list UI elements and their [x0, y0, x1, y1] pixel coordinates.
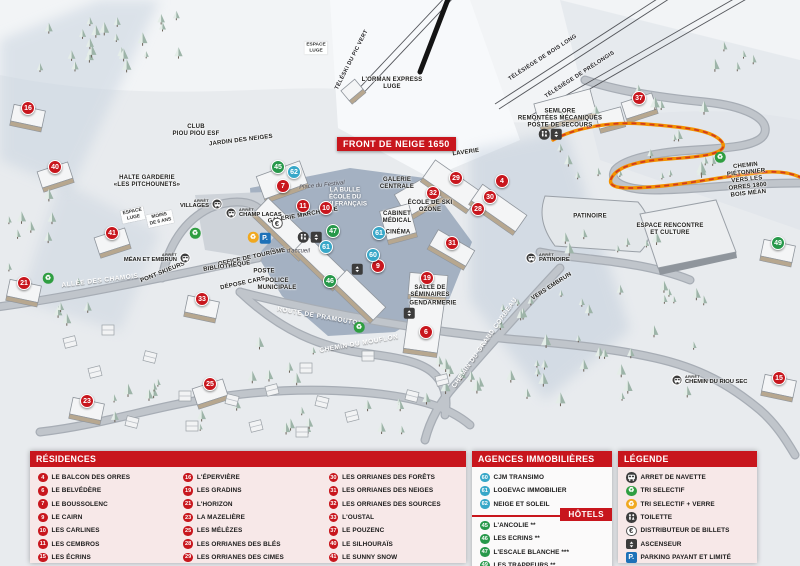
map-marker-16-0[interactable]: 16 [21, 101, 35, 115]
hotel-number-badge: 46 [480, 534, 490, 544]
map-marker-32-14[interactable]: 32 [426, 186, 440, 200]
map-marker-46-23[interactable]: 46 [323, 274, 337, 288]
residence-label: LES ÉCRINS [52, 554, 91, 561]
elevator-icon [352, 264, 363, 275]
residence-label: LE SILHOURAÏS [342, 541, 393, 548]
map-marker-28-16[interactable]: 28 [471, 202, 485, 216]
amenity-euro-0: € [272, 218, 283, 229]
residence-item-33: 33L'OUSTAL [321, 511, 466, 524]
amenity-recycle-5: ♻ [354, 322, 365, 333]
map-marker-60-28[interactable]: 60 [366, 248, 380, 262]
legende-title: LÉGENDE [618, 451, 757, 467]
legend-label: DISTRIBUTEUR DE BILLETS [641, 527, 730, 534]
amenity-elevator-8 [311, 232, 322, 243]
hotel-number-badge: 45 [480, 521, 490, 531]
residence-item-41: 41LE SUNNY SNOW [321, 551, 466, 564]
residence-item-7: 7LE BOUSSOLENC [30, 498, 175, 511]
residence-item-23: 23LA MAZELIÈRE [175, 511, 320, 524]
legend-item-2: ♻TRI SELECTIF + VERRE [618, 498, 757, 511]
parking-icon: P. [626, 552, 637, 563]
hotel-item-49: 49LES TRAPPEURS ** [472, 559, 612, 566]
amenity-toilet-10 [539, 129, 550, 140]
residence-item-28: 28LES ORRIANES DES BLÉS [175, 537, 320, 550]
agence-number-badge: 60 [480, 473, 490, 483]
map-marker-6-11[interactable]: 6 [419, 325, 433, 339]
residence-number-badge: 21 [183, 499, 193, 509]
legend-label: TRI SELECTIF [641, 487, 685, 494]
residence-number-badge: 6 [38, 486, 48, 496]
toilet-icon [298, 232, 309, 243]
residence-number-badge: 32 [329, 499, 339, 509]
hotel-number-badge: 49 [480, 561, 490, 566]
bus-stop-label-1: ARRÊTCHAMP LACAS [239, 208, 282, 218]
agences-title: AGENCES IMMOBILIÈRES [472, 451, 612, 467]
bus-stop-icon-2 [180, 253, 191, 264]
residence-item-29: 29LES ORRIANES DES CIMES [175, 551, 320, 564]
residence-label: LES ORRIANES DES BLÉS [197, 541, 281, 548]
front-de-neige-banner: FRONT DE NEIGE 1650 [337, 137, 456, 151]
map-marker-29-12[interactable]: 29 [449, 171, 463, 185]
bus-stop-label-3: ARRÊTPATINOIRE [539, 253, 570, 263]
residence-item-19: 19LES GRADINS [175, 484, 320, 497]
residence-number-badge: 29 [183, 553, 193, 563]
residence-label: L'HORIZON [197, 501, 233, 508]
map-marker-11-8[interactable]: 11 [296, 199, 310, 213]
residence-number-badge: 10 [38, 526, 48, 536]
residence-number-badge: 37 [329, 526, 339, 536]
hotel-item-47: 47L'ESCALE BLANCHE *** [472, 545, 612, 558]
map-marker-61-26[interactable]: 61 [319, 240, 333, 254]
legend-item-0: ARRET DE NAVETTE [618, 471, 757, 484]
residence-label: LE BELVÉDÈRE [52, 487, 102, 494]
residence-number-badge: 25 [183, 526, 193, 536]
resort-map: FRONT DE NEIGE 1650 L'ORMAN EXPRESS LUGE… [0, 0, 800, 566]
bus-stop-icon-3 [526, 253, 537, 264]
map-marker-41-3[interactable]: 41 [105, 226, 119, 240]
amenity-recycle-glass-2: ♻ [248, 232, 259, 243]
agence-label: NEIGE ET SOLEIL [494, 501, 550, 508]
residence-number-badge: 9 [38, 513, 48, 523]
recycle-green-icon: ♻ [43, 273, 54, 284]
legend-item-1: ♻TRI SELECTIF [618, 484, 757, 497]
bus-stop-icon-4 [672, 375, 683, 386]
bus-stop-icon-1 [226, 208, 237, 219]
map-marker-31-17[interactable]: 31 [445, 236, 459, 250]
map-marker-19-18[interactable]: 19 [420, 271, 434, 285]
residence-label: LES CARLINES [52, 527, 100, 534]
residence-number-badge: 7 [38, 499, 48, 509]
recycle-glass-icon: ♻ [626, 499, 637, 510]
residence-item-15: 15LES ÉCRINS [30, 551, 175, 564]
hotel-label: L'ANCOLIE ** [494, 522, 536, 529]
agence-item-61: 61LOGEVAC IMMOBILIER [472, 484, 612, 497]
residence-label: LA MAZELIÈRE [197, 514, 245, 521]
bus-stop-label-2: ARRÊTMÉAN ET EMBRUN [124, 253, 177, 263]
bus-stop-label-4: ARRÊTCHEMIN DU RIOU SEC [685, 375, 747, 385]
residence-label: LES ORRIANES DES NEIGES [342, 487, 433, 494]
residence-item-21: 21L'HORIZON [175, 498, 320, 511]
parking-icon: P. [260, 233, 271, 244]
residence-label: LE BALCON DES ORRES [52, 474, 131, 481]
recycle-glass-icon: ♻ [248, 232, 259, 243]
residence-number-badge: 11 [38, 539, 48, 549]
map-marker-37-19[interactable]: 37 [632, 91, 646, 105]
agence-number-badge: 62 [480, 499, 490, 509]
legend-label: TRI SELECTIF + VERRE [641, 501, 715, 508]
residences-panel: RÉSIDENCES 4LE BALCON DES ORRES6LE BELVÉ… [30, 451, 466, 563]
elevator-icon [404, 308, 415, 319]
patinoire-building [542, 196, 650, 252]
amenity-toilet-7 [298, 232, 309, 243]
map-marker-7-7[interactable]: 7 [276, 179, 290, 193]
residence-label: LE POUZENC [342, 527, 384, 534]
legende-panel: LÉGENDE ARRET DE NAVETTE♻TRI SELECTIF♻TR… [618, 451, 757, 563]
residence-number-badge: 28 [183, 539, 193, 549]
residence-number-badge: 41 [329, 553, 339, 563]
map-marker-33-6[interactable]: 33 [195, 292, 209, 306]
amenity-elevator-12 [404, 308, 415, 319]
map-marker-61-27[interactable]: 61 [372, 226, 386, 240]
hotels-title: HÔTELS [560, 508, 612, 521]
map-marker-25-5[interactable]: 25 [203, 377, 217, 391]
map-marker-4-13[interactable]: 4 [495, 174, 509, 188]
euro-atm-icon: € [272, 218, 283, 229]
residence-label: LES ORRIANES DES CIMES [197, 554, 284, 561]
residence-label: LES GRADINS [197, 487, 242, 494]
amenity-elevator-11 [551, 129, 562, 140]
hotel-label: LES TRAPPEURS ** [494, 562, 556, 566]
residence-label: LES CEMBROS [52, 541, 100, 548]
bus-icon [626, 472, 637, 483]
amenity-recycle-6: ♻ [715, 152, 726, 163]
residence-item-37: 37LE POUZENC [321, 524, 466, 537]
residence-item-40: 40LE SILHOURAÏS [321, 537, 466, 550]
amenity-elevator-9 [352, 264, 363, 275]
residence-item-16: 16L'ÉPERVIÈRE [175, 471, 320, 484]
bus-stop-label-0: ARRÊTVILLAGES [180, 199, 209, 209]
hotels-divider: HÔTELS [472, 515, 612, 517]
residence-number-badge: 4 [38, 473, 48, 483]
map-marker-47-22[interactable]: 47 [326, 224, 340, 238]
legend-item-6: P.PARKING PAYANT ET LIMITÉ [618, 551, 757, 564]
residence-label: L'ÉPERVIÈRE [197, 474, 240, 481]
residence-number-badge: 31 [329, 486, 339, 496]
residence-item-11: 11LES CEMBROS [30, 537, 175, 550]
elevator-icon [311, 232, 322, 243]
recycle-green-icon: ♻ [190, 228, 201, 239]
recycle-green-icon: ♻ [715, 152, 726, 163]
map-marker-49-24[interactable]: 49 [771, 236, 785, 250]
residence-item-4: 4LE BALCON DES ORRES [30, 471, 175, 484]
toilet-icon [626, 512, 637, 523]
residence-label: LES MÉLÈZES [197, 527, 243, 534]
residence-item-25: 25LES MÉLÈZES [175, 524, 320, 537]
residence-number-badge: 19 [183, 486, 193, 496]
legend-label: ARRET DE NAVETTE [641, 474, 706, 481]
legend-label: ASCENSEUR [641, 541, 682, 548]
legend-item-5: ASCENSEUR [618, 537, 757, 550]
residence-number-badge: 16 [183, 473, 193, 483]
map-marker-62-25[interactable]: 62 [287, 165, 301, 179]
map-marker-30-15[interactable]: 30 [483, 190, 497, 204]
map-marker-10-9[interactable]: 10 [319, 201, 333, 215]
residence-item-6: 6LE BELVÉDÈRE [30, 484, 175, 497]
residence-number-badge: 30 [329, 473, 339, 483]
legend-item-4: €DISTRIBUTEUR DE BILLETS [618, 524, 757, 537]
residence-label: LE SUNNY SNOW [342, 554, 397, 561]
map-marker-45-21[interactable]: 45 [271, 160, 285, 174]
residence-label: LES ORRIANES DES SOURCES [342, 501, 441, 508]
residence-label: LE CAIRN [52, 514, 83, 521]
residence-label: LES ORRIANES DES FORÊTS [342, 474, 435, 481]
hotel-label: L'ESCALE BLANCHE *** [494, 549, 570, 556]
map-marker-40-1[interactable]: 40 [48, 160, 62, 174]
elevator-icon [626, 539, 637, 550]
agence-label: CJM TRANSIMO [494, 474, 545, 481]
hotel-item-46: 46LES ECRINS ** [472, 532, 612, 545]
residence-label: L'OUSTAL [342, 514, 374, 521]
hotel-label: LES ECRINS ** [494, 535, 540, 542]
residence-item-9: 9LE CAIRN [30, 511, 175, 524]
euro-atm-icon: € [626, 526, 637, 537]
agence-item-60: 60CJM TRANSIMO [472, 471, 612, 484]
residence-item-32: 32LES ORRIANES DES SOURCES [321, 498, 466, 511]
amenity-recycle-3: ♻ [190, 228, 201, 239]
map-marker-23-4[interactable]: 23 [80, 394, 94, 408]
agences-hotels-panel: AGENCES IMMOBILIÈRES 60CJM TRANSIMO61LOG… [472, 451, 612, 566]
map-marker-15-20[interactable]: 15 [772, 371, 786, 385]
legend-label: TOILETTE [641, 514, 673, 521]
residence-number-badge: 33 [329, 513, 339, 523]
recycle-green-icon: ♻ [626, 486, 637, 497]
residences-title: RÉSIDENCES [30, 451, 466, 467]
elevator-icon [551, 129, 562, 140]
amenity-recycle-4: ♻ [43, 273, 54, 284]
amenity-parking-1: P. [260, 233, 271, 244]
agence-label: LOGEVAC IMMOBILIER [494, 487, 567, 494]
residence-number-badge: 40 [329, 539, 339, 549]
residence-item-10: 10LES CARLINES [30, 524, 175, 537]
bus-stop-icon-0 [212, 199, 223, 210]
legend-item-3: TOILETTE [618, 511, 757, 524]
residence-item-30: 30LES ORRIANES DES FORÊTS [321, 471, 466, 484]
residence-item-31: 31LES ORRIANES DES NEIGES [321, 484, 466, 497]
residence-number-badge: 15 [38, 553, 48, 563]
recycle-green-icon: ♻ [354, 322, 365, 333]
map-marker-21-2[interactable]: 21 [17, 276, 31, 290]
agence-number-badge: 61 [480, 486, 490, 496]
residence-number-badge: 23 [183, 513, 193, 523]
residence-label: LE BOUSSOLENC [52, 501, 108, 508]
hotel-number-badge: 47 [480, 547, 490, 557]
toilet-icon [539, 129, 550, 140]
legend-label: PARKING PAYANT ET LIMITÉ [641, 554, 731, 561]
